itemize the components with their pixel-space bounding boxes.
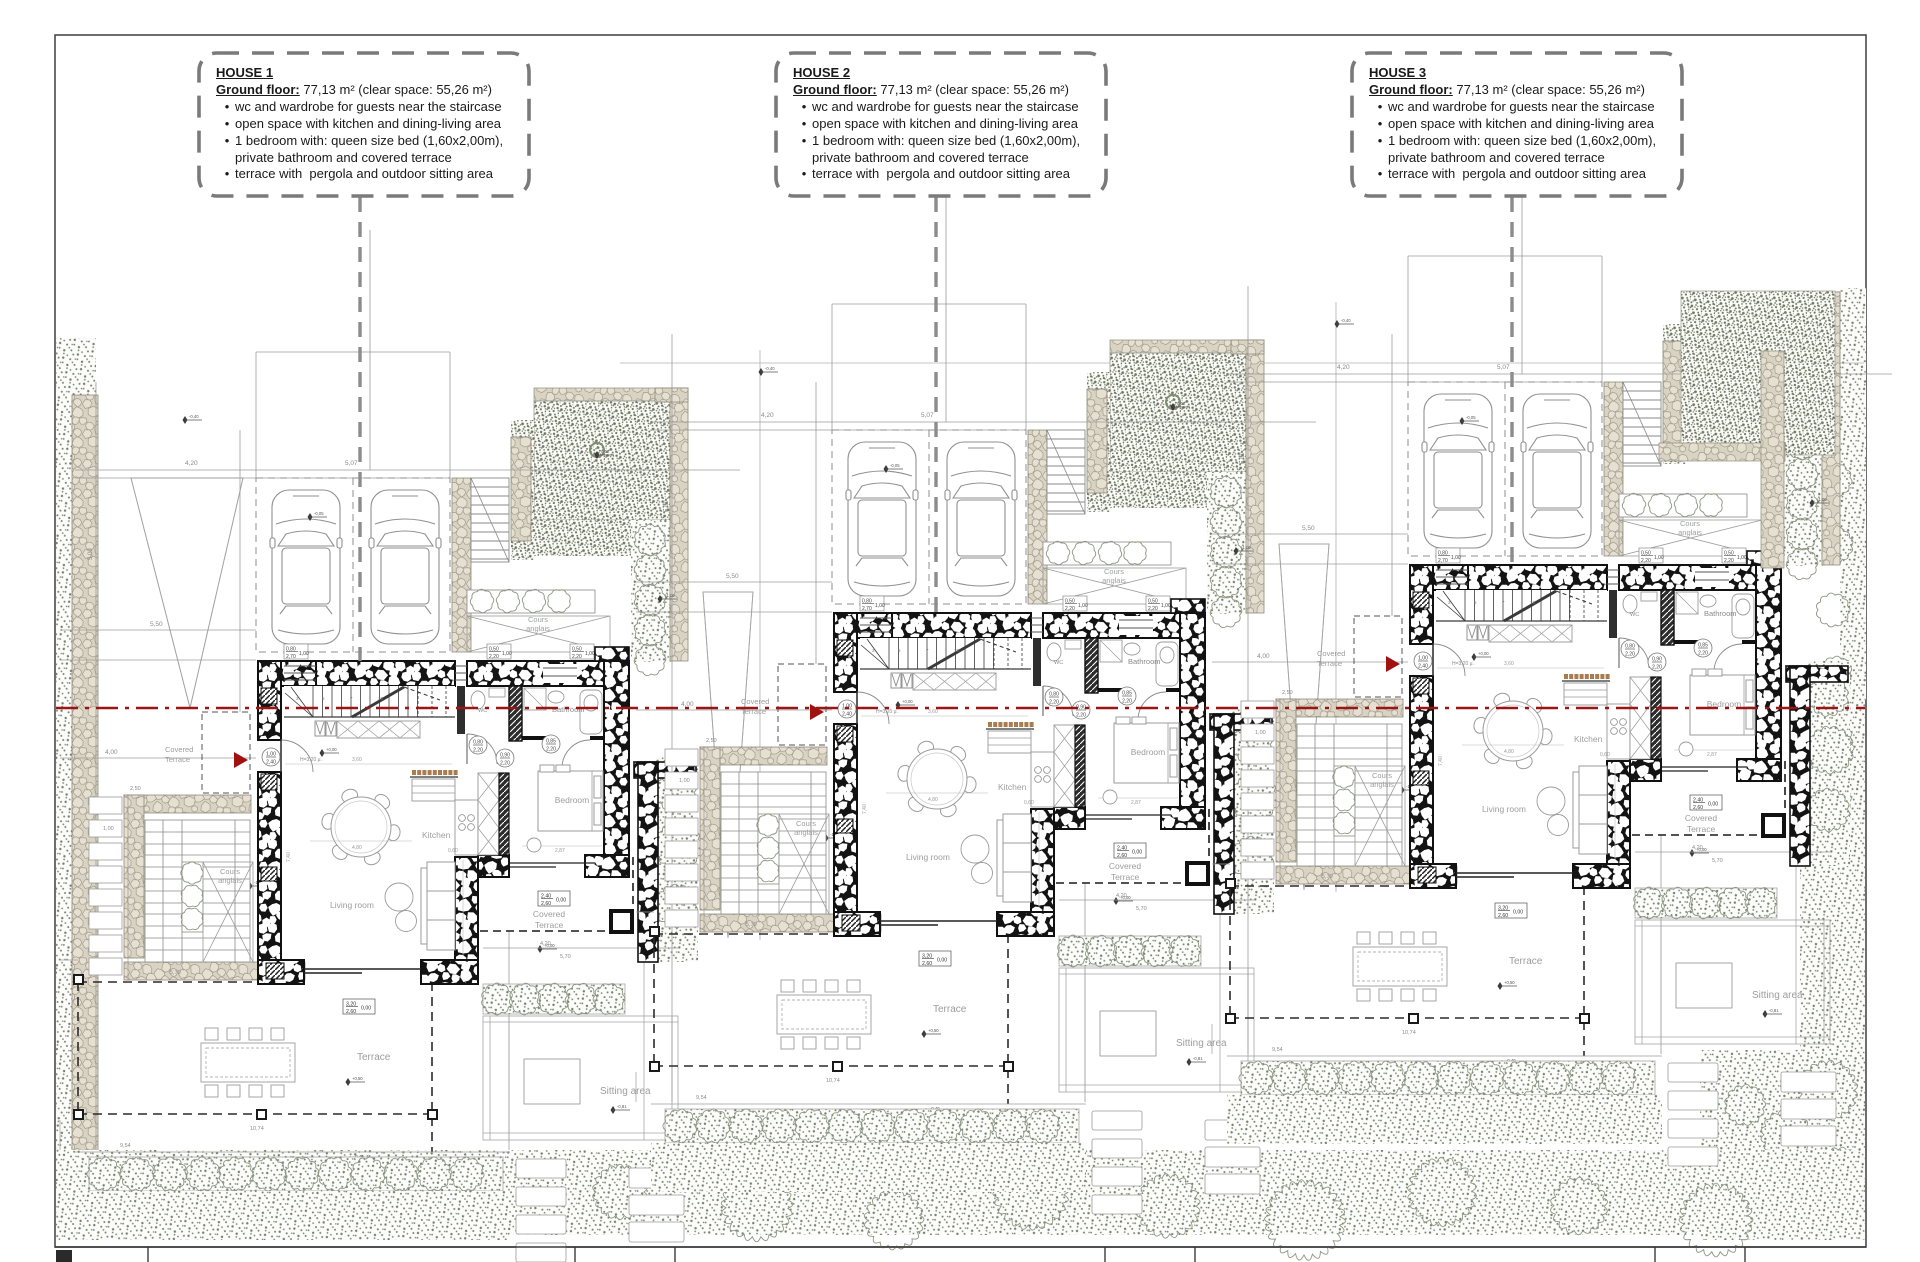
svg-text:0,60: 0,60: [1600, 752, 1610, 758]
svg-text:Terrace: Terrace: [1509, 956, 1543, 967]
svg-text:Covered: Covered: [1685, 813, 1717, 823]
svg-text:10: 10: [1530, 600, 1536, 605]
svg-text:1,00: 1,00: [1654, 555, 1664, 561]
svg-text:5,70: 5,70: [560, 954, 571, 960]
svg-text:Living room: Living room: [906, 852, 950, 862]
svg-text:5,70: 5,70: [170, 970, 181, 976]
svg-text:2,40: 2,40: [842, 712, 852, 718]
svg-text:0,00: 0,00: [361, 1006, 371, 1012]
svg-text:+1,00: +1,00: [1816, 497, 1827, 502]
svg-text:2,20: 2,20: [1076, 713, 1086, 719]
svg-text:-0,40: -0,40: [765, 366, 775, 371]
svg-text:Terrace: Terrace: [1111, 872, 1140, 882]
svg-text:0,00: 0,00: [1513, 910, 1523, 916]
svg-text:anglais: anglais: [218, 876, 242, 885]
svg-text:1,00: 1,00: [875, 603, 885, 609]
svg-text:10,74: 10,74: [1402, 1030, 1416, 1036]
svg-text:5,07: 5,07: [345, 460, 358, 467]
svg-text:Kitchen: Kitchen: [1574, 734, 1603, 744]
svg-text:4,20: 4,20: [1692, 845, 1703, 851]
svg-text:2,50: 2,50: [1282, 690, 1293, 696]
svg-text:7,40: 7,40: [862, 804, 868, 814]
svg-text:2,87: 2,87: [555, 848, 565, 854]
svg-text:10: 10: [378, 696, 384, 701]
svg-text:0,60: 0,60: [601, 449, 610, 454]
svg-text:5,00: 5,00: [664, 500, 670, 512]
svg-text:H=3,20 μ.: H=3,20 μ.: [876, 709, 898, 715]
svg-text:2,50: 2,50: [130, 786, 141, 792]
svg-text:Terrace: Terrace: [933, 1004, 967, 1015]
svg-text:0,90: 0,90: [1652, 657, 1662, 663]
svg-text:9,54: 9,54: [1272, 1047, 1283, 1053]
svg-text:1,00: 1,00: [1255, 730, 1266, 736]
svg-text:1,00: 1,00: [299, 651, 309, 657]
svg-text:0,00: 0,00: [1708, 802, 1718, 808]
svg-text:+0,50: +0,50: [352, 1076, 363, 1081]
svg-text:Living room: Living room: [1482, 804, 1526, 814]
svg-text:anglais: anglais: [1102, 576, 1126, 585]
svg-text:5,00: 5,00: [1240, 452, 1246, 464]
svg-text:0,80: 0,80: [473, 740, 483, 746]
svg-text:WC: WC: [1054, 660, 1063, 666]
svg-text:Cours: Cours: [1104, 567, 1124, 576]
svg-text:2,20: 2,20: [1148, 606, 1158, 612]
svg-text:Cours: Cours: [1372, 771, 1392, 780]
svg-text:Terrace: Terrace: [1317, 659, 1342, 668]
svg-text:Covered: Covered: [533, 909, 565, 919]
svg-text:5,00: 5,00: [88, 548, 94, 560]
svg-text:Bathroom: Bathroom: [1128, 657, 1161, 666]
svg-text:Covered: Covered: [741, 697, 769, 706]
svg-text:+0,50: +0,50: [1504, 980, 1515, 985]
svg-text:Terrace: Terrace: [165, 755, 190, 764]
svg-text:10,74: 10,74: [826, 1078, 840, 1084]
svg-text:2,20: 2,20: [1641, 558, 1651, 564]
svg-text:4,00: 4,00: [1257, 653, 1270, 660]
svg-text:2,20: 2,20: [1698, 651, 1708, 657]
svg-text:Cours: Cours: [528, 615, 548, 624]
svg-text:0,60: 0,60: [448, 848, 458, 854]
svg-text:3,60: 3,60: [928, 709, 938, 715]
svg-text:2,20: 2,20: [489, 654, 499, 660]
svg-text:4,80: 4,80: [1504, 749, 1514, 755]
svg-text:5,07: 5,07: [1497, 364, 1510, 371]
svg-text:Terrace: Terrace: [1687, 824, 1716, 834]
svg-text:3,60: 3,60: [352, 757, 362, 763]
svg-text:-0,40: -0,40: [1341, 318, 1351, 323]
svg-text:2,50: 2,50: [706, 738, 717, 744]
svg-text:4,20: 4,20: [540, 941, 551, 947]
svg-text:1,00: 1,00: [585, 651, 595, 657]
svg-text:Terrace: Terrace: [535, 920, 564, 930]
svg-text:Bedroom: Bedroom: [555, 795, 590, 805]
svg-text:2,20: 2,20: [572, 654, 582, 660]
svg-text:2,60: 2,60: [1693, 805, 1703, 811]
svg-text:9,54: 9,54: [696, 1095, 707, 1101]
svg-text:+0,50: +0,50: [928, 1028, 939, 1033]
svg-text:10,74: 10,74: [250, 1126, 264, 1132]
svg-text:-0,81: -0,81: [1769, 1008, 1779, 1013]
svg-text:2,70: 2,70: [862, 606, 872, 612]
svg-text:4,00: 4,00: [105, 749, 118, 756]
svg-text:9,54: 9,54: [120, 1143, 131, 1149]
svg-text:4,20: 4,20: [185, 460, 198, 467]
svg-text:0,60: 0,60: [1024, 800, 1034, 806]
svg-text:1,00: 1,00: [502, 651, 512, 657]
svg-text:-0,05: -0,05: [314, 511, 324, 516]
svg-text:anglais: anglais: [1678, 528, 1702, 537]
svg-text:4,80: 4,80: [352, 845, 362, 851]
svg-text:2,20: 2,20: [1625, 652, 1635, 658]
svg-text:Covered: Covered: [165, 745, 193, 754]
svg-text:Covered: Covered: [1317, 649, 1345, 658]
svg-text:+0,00: +0,00: [326, 747, 337, 752]
svg-text:1,00: 1,00: [266, 752, 276, 758]
svg-text:Covered: Covered: [1109, 861, 1141, 871]
svg-text:2,20: 2,20: [1065, 606, 1075, 612]
svg-text:3,60: 3,60: [1504, 661, 1514, 667]
svg-text:5,70: 5,70: [746, 922, 757, 928]
svg-text:0,85: 0,85: [1698, 643, 1708, 649]
svg-text:Sitting area: Sitting area: [600, 1086, 651, 1097]
svg-text:+0,00: +0,00: [902, 699, 913, 704]
svg-text:2,20: 2,20: [1122, 699, 1132, 705]
svg-text:2,60: 2,60: [541, 901, 551, 907]
svg-text:0,85: 0,85: [1122, 691, 1132, 697]
svg-text:1,00: 1,00: [679, 778, 690, 784]
svg-text:2,20: 2,20: [1724, 558, 1734, 564]
svg-text:H=3,20 μ.: H=3,20 μ.: [300, 757, 322, 763]
svg-text:2,60: 2,60: [346, 1009, 356, 1015]
svg-text:5,50: 5,50: [150, 621, 163, 628]
svg-text:1,00: 1,00: [1418, 656, 1428, 662]
svg-text:Cours: Cours: [796, 819, 816, 828]
svg-text:7,40: 7,40: [286, 852, 292, 862]
svg-text:1,00: 1,00: [103, 826, 114, 832]
svg-text:7,40: 7,40: [1438, 756, 1444, 766]
svg-text:1,00: 1,00: [1451, 555, 1461, 561]
svg-text:2,87: 2,87: [1131, 800, 1141, 806]
svg-text:1,00: 1,00: [1078, 603, 1088, 609]
svg-text:-0,81: -0,81: [1193, 1056, 1203, 1061]
svg-text:-0,40: -0,40: [189, 414, 199, 419]
svg-text:WC: WC: [1630, 612, 1639, 618]
svg-text:5,07: 5,07: [921, 412, 934, 419]
svg-text:Living room: Living room: [330, 900, 374, 910]
svg-text:2,70: 2,70: [286, 654, 296, 660]
svg-text:+0,00: +0,00: [1478, 651, 1489, 656]
svg-text:2,20: 2,20: [1049, 700, 1059, 706]
svg-text:10: 10: [954, 648, 960, 653]
svg-text:Sitting area: Sitting area: [1176, 1038, 1227, 1049]
svg-text:5,70: 5,70: [1322, 874, 1333, 880]
svg-text:5,70: 5,70: [1136, 906, 1147, 912]
svg-text:4,20: 4,20: [1116, 893, 1127, 899]
svg-text:0,85: 0,85: [546, 739, 556, 745]
svg-text:2,40: 2,40: [1418, 664, 1428, 670]
svg-text:2,87: 2,87: [1707, 752, 1717, 758]
svg-text:Sitting area: Sitting area: [1752, 990, 1803, 1001]
svg-text:Bathroom: Bathroom: [1704, 609, 1737, 618]
svg-text:2,20: 2,20: [1652, 665, 1662, 671]
svg-text:+1,00: +1,00: [1240, 545, 1251, 550]
svg-text:0,80: 0,80: [1049, 692, 1059, 698]
svg-text:anglais: anglais: [526, 624, 550, 633]
svg-text:2,20: 2,20: [546, 747, 556, 753]
svg-text:Kitchen: Kitchen: [998, 782, 1027, 792]
svg-text:2,40: 2,40: [266, 760, 276, 766]
svg-text:H=3,20 μ.: H=3,20 μ.: [1452, 661, 1474, 667]
svg-text:2,60: 2,60: [1498, 913, 1508, 919]
svg-text:Cours: Cours: [1680, 519, 1700, 528]
svg-text:anglais: anglais: [794, 828, 818, 837]
svg-text:1,00: 1,00: [1737, 555, 1747, 561]
svg-text:4,20: 4,20: [1337, 364, 1350, 371]
svg-text:5,50: 5,50: [726, 573, 739, 580]
svg-text:4,80: 4,80: [928, 797, 938, 803]
svg-text:-0,81: -0,81: [617, 1104, 627, 1109]
svg-text:Bathroom: Bathroom: [552, 705, 585, 714]
svg-text:0,00: 0,00: [1132, 850, 1142, 856]
svg-text:Bedroom: Bedroom: [1131, 747, 1166, 757]
svg-text:2,60: 2,60: [1117, 853, 1127, 859]
svg-text:Terrace: Terrace: [357, 1052, 391, 1063]
svg-text:1,00: 1,00: [1161, 603, 1171, 609]
svg-text:4,20: 4,20: [761, 412, 774, 419]
svg-text:0,60: 0,60: [1177, 401, 1186, 406]
svg-text:2,20: 2,20: [473, 748, 483, 754]
svg-text:-0,05: -0,05: [890, 463, 900, 468]
svg-text:5,70: 5,70: [1712, 858, 1723, 864]
svg-text:anglais: anglais: [1370, 780, 1394, 789]
svg-text:+1,00: +1,00: [664, 593, 675, 598]
svg-text:0,90: 0,90: [500, 753, 510, 759]
svg-text:2,20: 2,20: [500, 761, 510, 767]
svg-text:-0,05: -0,05: [1466, 415, 1476, 420]
svg-text:2,60: 2,60: [922, 961, 932, 967]
svg-text:Kitchen: Kitchen: [422, 830, 451, 840]
svg-text:2,70: 2,70: [1438, 558, 1448, 564]
svg-text:0,00: 0,00: [937, 958, 947, 964]
svg-text:0,80: 0,80: [1625, 644, 1635, 650]
svg-text:Cours: Cours: [220, 867, 240, 876]
svg-text:0,00: 0,00: [556, 898, 566, 904]
svg-text:5,50: 5,50: [1302, 525, 1315, 532]
